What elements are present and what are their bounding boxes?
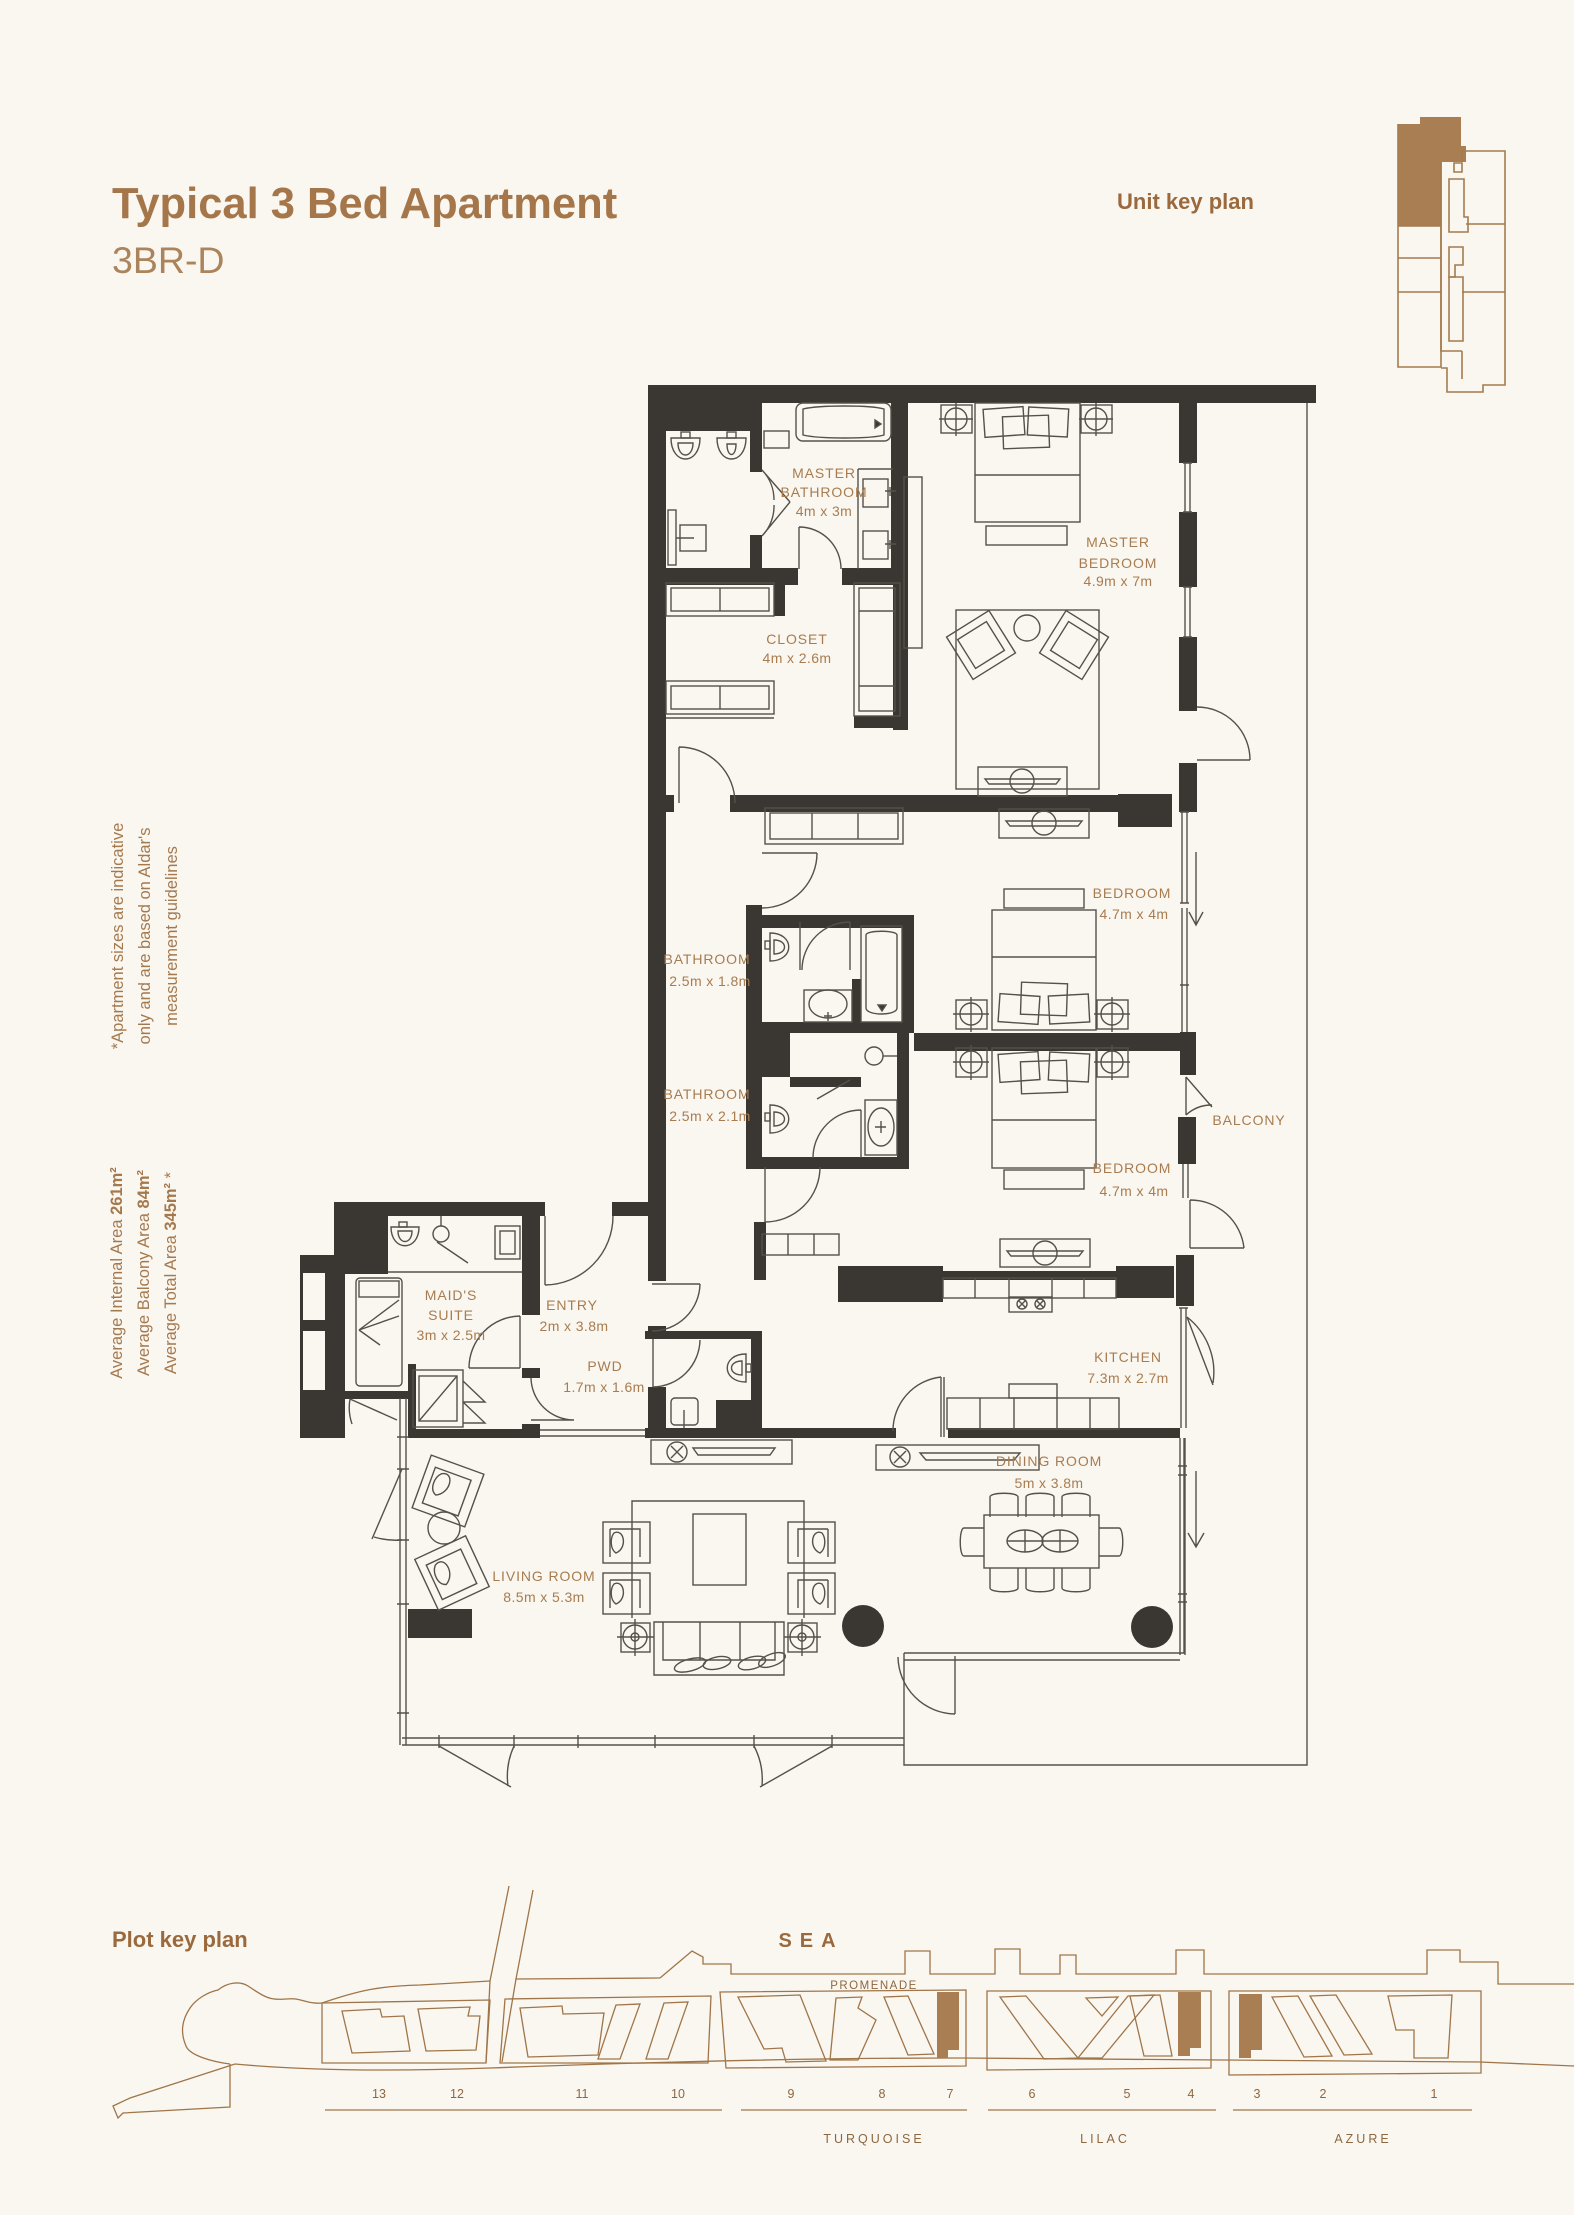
svg-text:SUITE: SUITE bbox=[428, 1307, 474, 1323]
svg-text:4.9m x 7m: 4.9m x 7m bbox=[1084, 573, 1153, 589]
svg-text:measurement guidelines: measurement guidelines bbox=[163, 846, 181, 1026]
svg-text:12: 12 bbox=[450, 2087, 464, 2101]
svg-text:Average Total Area 345m² *: Average Total Area 345m² * bbox=[162, 1171, 180, 1374]
svg-text:SEA: SEA bbox=[778, 1930, 843, 1952]
svg-text:BATHROOM: BATHROOM bbox=[663, 1086, 750, 1102]
svg-text:BALCONY: BALCONY bbox=[1212, 1112, 1285, 1128]
svg-text:8: 8 bbox=[879, 2087, 886, 2101]
svg-text:13: 13 bbox=[372, 2087, 386, 2101]
svg-text:Average Balcony Area 84m²: Average Balcony Area 84m² bbox=[135, 1169, 153, 1376]
svg-text:Unit key plan: Unit key plan bbox=[1117, 189, 1254, 214]
svg-text:7: 7 bbox=[947, 2087, 954, 2101]
svg-text:Average Internal Area 261m²: Average Internal Area 261m² bbox=[108, 1167, 126, 1379]
svg-text:2m x 3.8m: 2m x 3.8m bbox=[540, 1318, 609, 1334]
svg-text:4.7m x 4m: 4.7m x 4m bbox=[1100, 1183, 1169, 1199]
svg-text:MASTER: MASTER bbox=[1086, 534, 1150, 550]
svg-text:KITCHEN: KITCHEN bbox=[1094, 1349, 1162, 1365]
svg-text:BEDROOM: BEDROOM bbox=[1093, 885, 1172, 901]
svg-text:3m x 2.5m: 3m x 2.5m bbox=[417, 1327, 486, 1343]
svg-text:MASTER: MASTER bbox=[792, 465, 856, 481]
svg-text:MAID'S: MAID'S bbox=[425, 1287, 477, 1303]
svg-text:10: 10 bbox=[671, 2087, 685, 2101]
svg-text:ENTRY: ENTRY bbox=[546, 1297, 598, 1313]
svg-text:BATHROOM: BATHROOM bbox=[780, 484, 867, 500]
svg-text:3: 3 bbox=[1254, 2087, 1261, 2101]
svg-text:CLOSET: CLOSET bbox=[766, 631, 827, 647]
svg-text:only and are based on Aldar's: only and are based on Aldar's bbox=[136, 828, 154, 1045]
svg-text:BEDROOM: BEDROOM bbox=[1093, 1160, 1172, 1176]
svg-text:11: 11 bbox=[576, 2087, 589, 2101]
svg-text:8.5m x 5.3m: 8.5m x 5.3m bbox=[503, 1589, 584, 1605]
svg-text:TURQUOISE: TURQUOISE bbox=[823, 2132, 924, 2146]
svg-text:PWD: PWD bbox=[587, 1358, 622, 1374]
svg-text:LILAC: LILAC bbox=[1080, 2132, 1130, 2146]
svg-text:2.5m x 1.8m: 2.5m x 1.8m bbox=[669, 973, 750, 989]
svg-text:5m x 3.8m: 5m x 3.8m bbox=[1015, 1475, 1084, 1491]
svg-text:3BR-D: 3BR-D bbox=[112, 239, 225, 281]
svg-text:BEDROOM: BEDROOM bbox=[1079, 555, 1158, 571]
svg-text:AZURE: AZURE bbox=[1334, 2132, 1391, 2146]
svg-text:DINING ROOM: DINING ROOM bbox=[996, 1453, 1102, 1469]
svg-text:Plot key plan: Plot key plan bbox=[112, 1927, 248, 1952]
svg-text:2.5m x 2.1m: 2.5m x 2.1m bbox=[669, 1108, 750, 1124]
svg-text:Typical 3 Bed Apartment: Typical 3 Bed Apartment bbox=[112, 180, 617, 228]
svg-text:*Apartment sizes are indicativ: *Apartment sizes are indicative bbox=[109, 823, 127, 1050]
svg-text:4.7m x 4m: 4.7m x 4m bbox=[1100, 906, 1169, 922]
svg-text:4m x 3m: 4m x 3m bbox=[796, 503, 852, 519]
svg-text:BATHROOM: BATHROOM bbox=[663, 951, 750, 967]
svg-text:4: 4 bbox=[1188, 2087, 1195, 2101]
svg-text:7.3m x 2.7m: 7.3m x 2.7m bbox=[1087, 1370, 1168, 1386]
svg-text:LIVING ROOM: LIVING ROOM bbox=[492, 1568, 595, 1584]
svg-text:2: 2 bbox=[1320, 2087, 1327, 2101]
svg-text:6: 6 bbox=[1029, 2087, 1036, 2101]
svg-text:1: 1 bbox=[1431, 2087, 1438, 2101]
svg-text:4m x 2.6m: 4m x 2.6m bbox=[763, 650, 832, 666]
svg-text:9: 9 bbox=[788, 2087, 795, 2101]
svg-text:1.7m x 1.6m: 1.7m x 1.6m bbox=[563, 1379, 644, 1395]
svg-text:5: 5 bbox=[1124, 2087, 1131, 2101]
